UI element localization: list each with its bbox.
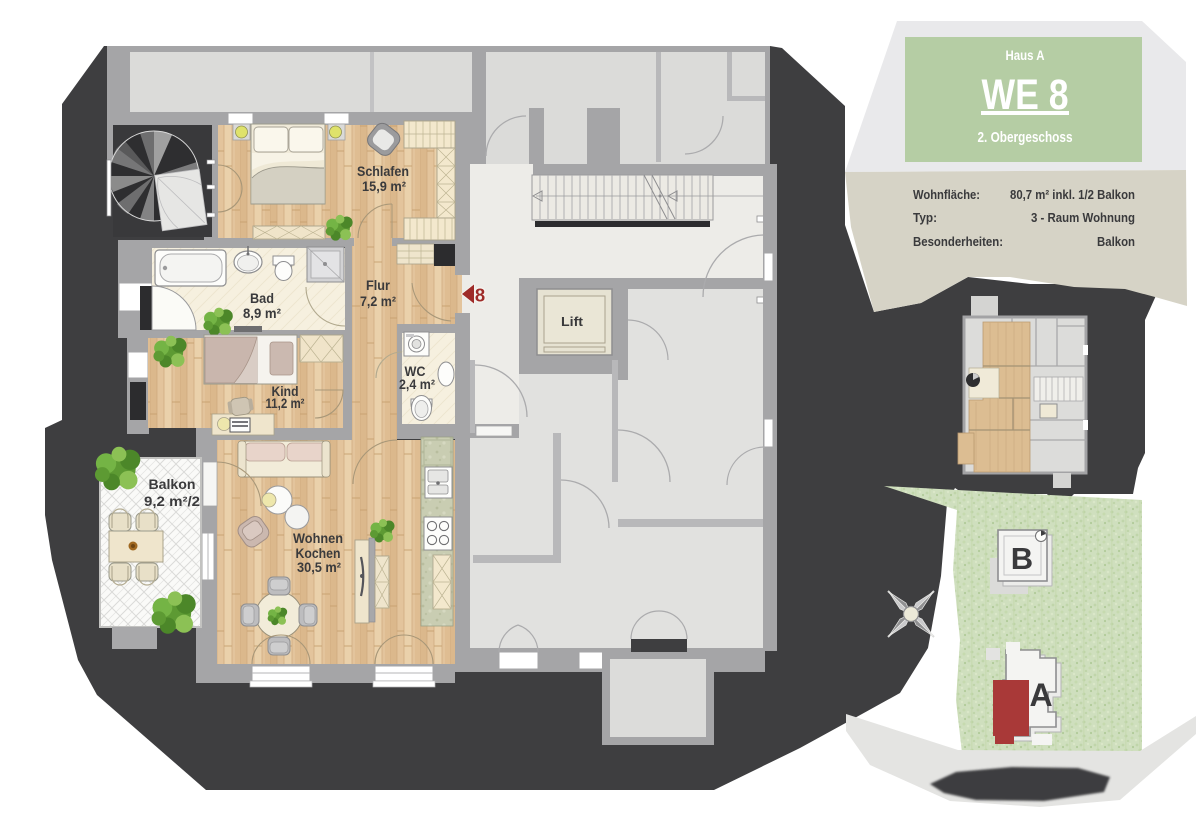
svg-text:2,4 m²: 2,4 m²	[399, 377, 435, 392]
svg-text:Typ:: Typ:	[913, 210, 937, 225]
svg-text:Wohnfläche:: Wohnfläche:	[913, 187, 980, 202]
svg-text:Kochen: Kochen	[296, 546, 341, 561]
svg-text:Schlafen: Schlafen	[357, 164, 409, 179]
svg-text:Balkon: Balkon	[1097, 234, 1135, 249]
svg-text:Bad: Bad	[250, 291, 274, 306]
svg-text:Haus A: Haus A	[1006, 47, 1045, 63]
svg-text:A: A	[1029, 677, 1052, 713]
svg-text:Wohnen: Wohnen	[293, 531, 343, 546]
svg-text:8: 8	[475, 285, 485, 306]
svg-text:Besonderheiten:: Besonderheiten:	[913, 234, 1003, 249]
svg-text:80,7 m² inkl. 1/2 Balkon: 80,7 m² inkl. 1/2 Balkon	[1010, 187, 1135, 202]
svg-text:7,2 m²: 7,2 m²	[360, 294, 396, 309]
svg-text:B: B	[1011, 541, 1033, 576]
svg-text:30,5 m²: 30,5 m²	[297, 560, 341, 575]
svg-text:Lift: Lift	[561, 314, 584, 329]
svg-text:2. Obergeschoss: 2. Obergeschoss	[978, 129, 1073, 146]
svg-text:3 - Raum Wohnung: 3 - Raum Wohnung	[1031, 210, 1135, 225]
svg-text:Balkon: Balkon	[149, 477, 196, 492]
svg-text:Flur: Flur	[366, 278, 391, 293]
svg-text:9,2 m²/2: 9,2 m²/2	[144, 494, 200, 509]
svg-text:11,2 m²: 11,2 m²	[266, 396, 305, 411]
svg-text:8,9 m²: 8,9 m²	[243, 306, 281, 321]
svg-text:15,9 m²: 15,9 m²	[362, 179, 406, 194]
